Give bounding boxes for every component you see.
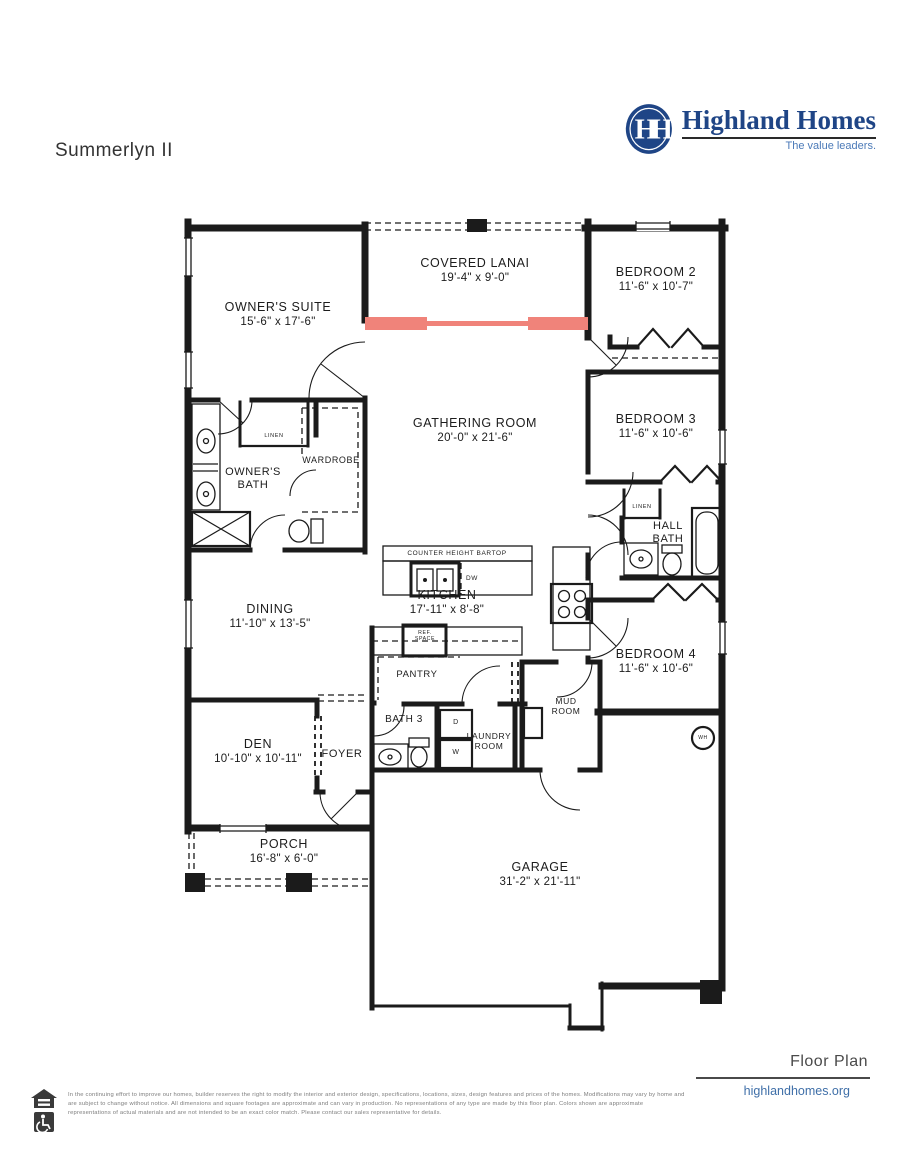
linen-closet-label-hall: LINEN <box>632 504 651 511</box>
accessibility-icon <box>34 1112 54 1132</box>
lanai-screen-and-posts <box>365 219 585 232</box>
bath3-fixtures <box>374 738 429 770</box>
floor-plan-label: Floor Plan <box>790 1053 868 1071</box>
room-label-mud-room: MUD ROOM <box>544 697 588 717</box>
dishwasher-label: DW <box>466 575 478 583</box>
mud-room-bench <box>524 708 542 738</box>
room-label-foyer: FOYER <box>322 748 363 761</box>
washer-label: W <box>452 749 459 757</box>
room-label-porch: PORCH 16'-8" x 6'-0" <box>250 837 319 867</box>
room-label-bedroom-4: BEDROOM 4 11'-6" x 10'-6" <box>616 647 696 677</box>
equal-housing-and-accessibility-icons <box>31 1089 57 1133</box>
room-label-pantry: PANTRY <box>396 670 437 681</box>
room-label-bath-3: BATH 3 <box>385 714 423 726</box>
sliding-glass-door <box>365 317 588 330</box>
room-label-owners-bath: OWNER'S BATH <box>219 466 287 491</box>
room-label-wardrobe: WARDROBE <box>302 455 359 465</box>
room-label-hall-bath: HALL BATH <box>646 520 690 545</box>
room-label-gathering-room: GATHERING ROOM 20'-0" x 21'-6" <box>413 416 537 446</box>
room-label-bedroom-2: BEDROOM 2 11'-6" x 10'-7" <box>616 265 696 295</box>
room-label-covered-lanai: COVERED LANAI 19'-4" x 9'-0" <box>420 256 529 286</box>
room-label-kitchen: KITCHEN 17'-11" x 8'-8" <box>410 588 484 618</box>
room-label-dining: DINING 11'-10" x 13'-5" <box>229 602 310 632</box>
dryer-label: D <box>453 719 459 727</box>
water-heater-label: WH <box>698 735 708 741</box>
ref-space-label: REF. SPACE <box>414 630 436 642</box>
floor-plan-page: Summerlyn II HH Highland Homes The value… <box>0 0 900 1164</box>
counter-bartop-label: COUNTER HEIGHT BARTOP <box>407 550 506 558</box>
disclaimer-text: In the continuing effort to improve our … <box>68 1091 688 1118</box>
linen-closet-label-owners: LINEN <box>264 433 283 440</box>
website-link[interactable]: highlandhomes.org <box>744 1084 850 1098</box>
room-label-laundry-room: LAUNDRY ROOM <box>462 732 516 752</box>
floor-plan-drawing <box>0 0 900 1164</box>
room-label-den: DEN 10'-10" x 10'-11" <box>214 737 302 767</box>
equal-housing-icon <box>31 1089 57 1108</box>
footer-icons <box>31 1089 61 1138</box>
room-label-bedroom-3: BEDROOM 3 11'-6" x 10'-6" <box>616 412 696 442</box>
room-label-owners-suite: OWNER'S SUITE 15'-6" x 17'-6" <box>225 300 332 330</box>
footer-divider <box>696 1077 870 1079</box>
room-label-garage: GARAGE 31'-2" x 21'-11" <box>499 860 580 890</box>
